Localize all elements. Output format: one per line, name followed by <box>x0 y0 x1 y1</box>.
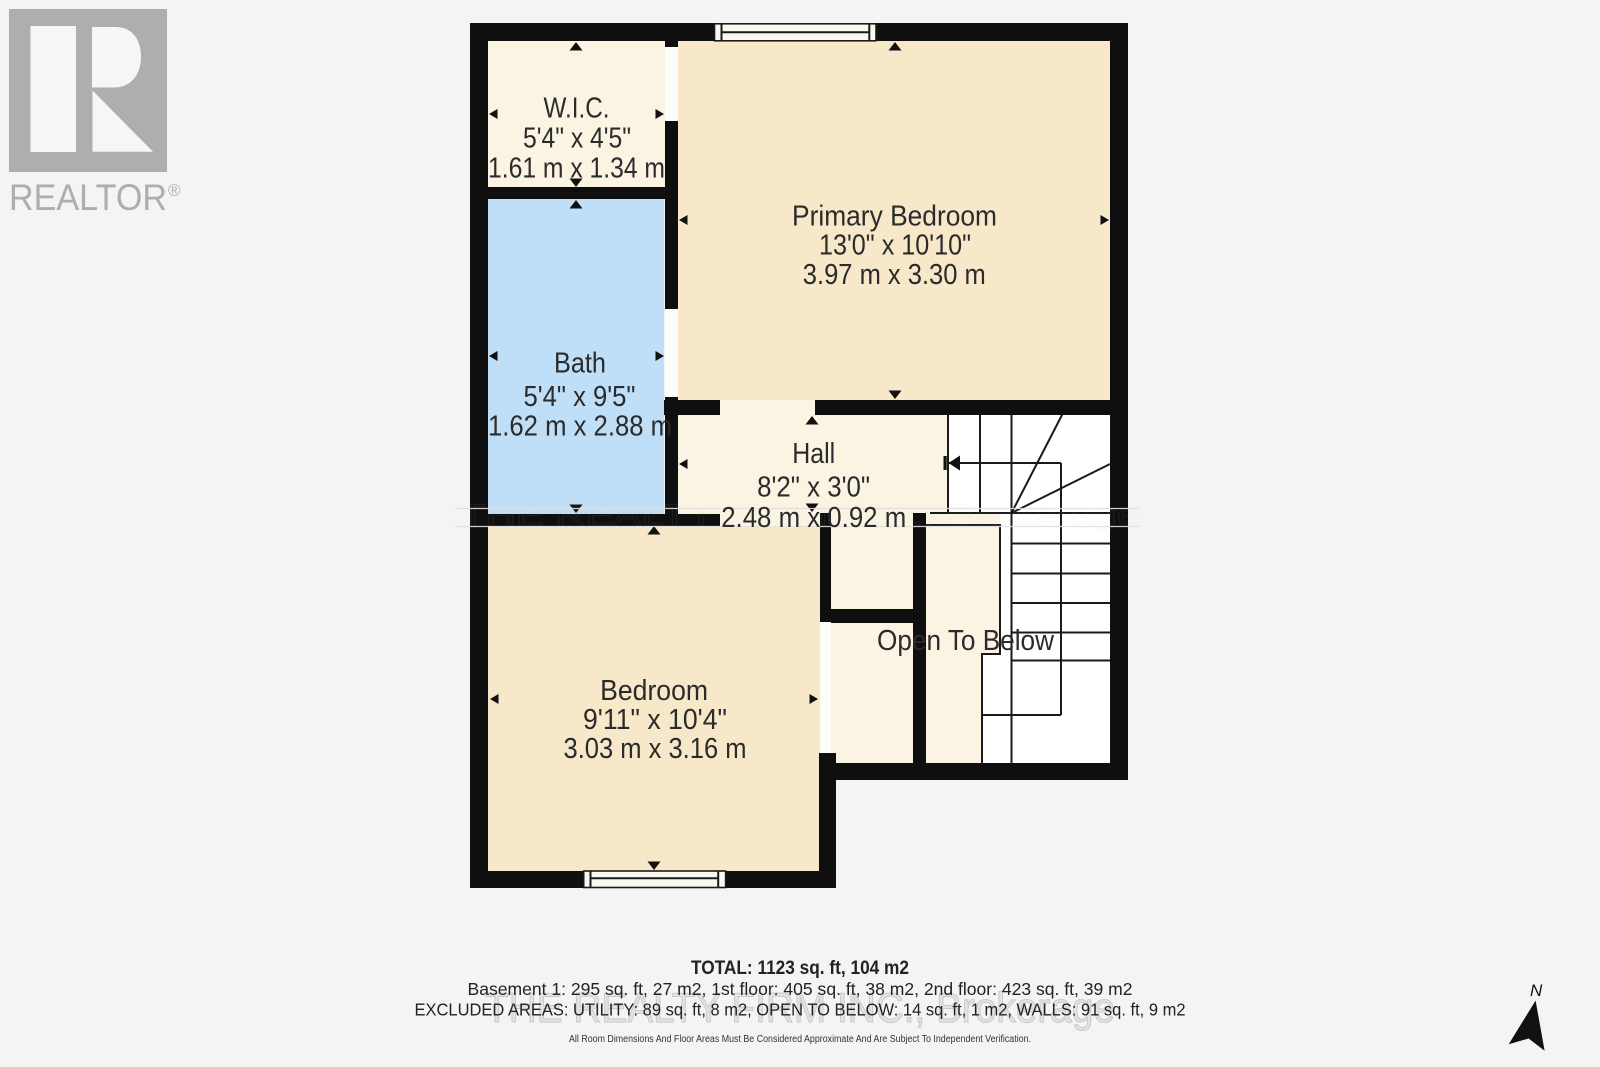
svg-text:Bath: Bath <box>554 348 606 380</box>
svg-text:Hall: Hall <box>792 438 835 470</box>
svg-text:9'11" x 10'4": 9'11" x 10'4" <box>583 704 727 736</box>
svg-text:TOTAL: 1123 sq. ft, 104 m2: TOTAL: 1123 sq. ft, 104 m2 <box>691 958 909 979</box>
svg-text:5'4" x 4'5": 5'4" x 4'5" <box>523 123 631 155</box>
svg-text:2.48 m x 0.92 m: 2.48 m x 0.92 m <box>721 502 906 534</box>
svg-text:N: N <box>1530 981 1543 1000</box>
svg-text:®: ® <box>168 181 181 200</box>
svg-text:Primary Bedroom: Primary Bedroom <box>792 201 997 233</box>
svg-text:Bedroom: Bedroom <box>600 675 708 707</box>
svg-text:Basement 1: 295 sq. ft, 27 m2,: Basement 1: 295 sq. ft, 27 m2, 1st floor… <box>468 979 1133 999</box>
svg-text:Open To Below: Open To Below <box>877 625 1054 657</box>
svg-text:13'0" x 10'10": 13'0" x 10'10" <box>819 230 971 262</box>
svg-text:3.97 m x 3.30 m: 3.97 m x 3.30 m <box>803 259 986 291</box>
svg-text:1.61 m x 1.34 m: 1.61 m x 1.34 m <box>488 153 665 185</box>
svg-text:5'4" x 9'5": 5'4" x 9'5" <box>524 381 636 413</box>
svg-text:W.I.C.: W.I.C. <box>544 93 610 125</box>
svg-text:REALTOR: REALTOR <box>9 177 167 218</box>
svg-text:EXCLUDED AREAS: UTILITY: 89 sq: EXCLUDED AREAS: UTILITY: 89 sq. ft, 8 m2… <box>415 1000 1186 1020</box>
svg-text:All Room Dimensions And Floor: All Room Dimensions And Floor Areas Must… <box>569 1034 1031 1045</box>
svg-text:8'2" x 3'0": 8'2" x 3'0" <box>757 472 870 504</box>
svg-text:3.03 m x 3.16 m: 3.03 m x 3.16 m <box>564 733 747 765</box>
svg-text:1.62 m x 2.88 m: 1.62 m x 2.88 m <box>488 411 672 443</box>
